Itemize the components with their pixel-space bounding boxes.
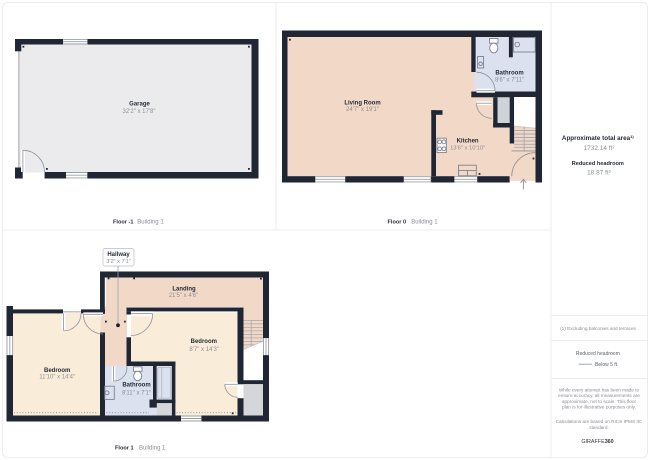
svg-text:3'2" x 7'1": 3'2" x 7'1" [106,259,130,265]
svg-text:Building 1: Building 1 [139,446,166,452]
svg-text:Approximate total area1): Approximate total area1) [562,134,634,142]
svg-text:1732.14 ft²: 1732.14 ft² [583,145,615,152]
svg-text:21'5" x 4'6": 21'5" x 4'6" [169,293,199,299]
svg-text:Bedroom: Bedroom [191,339,217,345]
svg-text:While every attempt has been m: While every attempt has been made to [559,388,640,393]
svg-text:plan is for illustrative purpo: plan is for illustrative purposes only. [562,405,636,410]
svg-text:Hallway: Hallway [107,252,130,258]
svg-text:24'7" x 19'1": 24'7" x 19'1" [346,107,379,113]
svg-text:standard.: standard. [589,425,609,430]
svg-text:8'7" x 14'3": 8'7" x 14'3" [189,347,219,353]
svg-text:Bathroom: Bathroom [122,383,150,389]
svg-text:GIRAFFE360: GIRAFFE360 [581,439,613,445]
svg-text:8'6" x 7'11": 8'6" x 7'11" [495,77,524,83]
svg-text:Bathroom: Bathroom [495,71,523,77]
svg-text:Bedroom: Bedroom [44,368,70,374]
svg-text:Below 5 ft: Below 5 ft [595,362,618,368]
svg-text:Calculations are based on RICS: Calculations are based on RICS IPMS 3C [556,419,643,424]
svg-text:8'11" x 7'1": 8'11" x 7'1" [122,390,151,396]
svg-text:Floor 1: Floor 1 [115,446,134,452]
svg-text:32'2" x 17'8": 32'2" x 17'8" [123,109,156,115]
svg-text:Garage: Garage [129,101,150,107]
svg-text:approximate, not to scale. Thi: approximate, not to scale. This floor [562,399,637,404]
svg-text:11'10" x 14'4": 11'10" x 14'4" [39,374,75,380]
svg-text:Floor 0: Floor 0 [388,219,407,225]
svg-text:Building 1: Building 1 [411,219,438,225]
svg-text:13'6" x 10'10": 13'6" x 10'10" [450,145,485,151]
svg-text:Floor -1: Floor -1 [113,220,134,226]
svg-text:Living Room: Living Room [344,100,380,106]
svg-text:Landing: Landing [172,287,196,293]
svg-text:Reduced headroom: Reduced headroom [572,161,624,167]
svg-text:Building 1: Building 1 [137,220,164,226]
svg-text:18.87 ft²: 18.87 ft² [587,169,612,176]
svg-text:ensure accuracy, all measureme: ensure accuracy, all measurements are [558,393,640,398]
svg-text:Reduced headroom: Reduced headroom [576,351,620,357]
svg-text:Kitchen: Kitchen [457,138,479,144]
svg-text:(1) Excluding balconies and te: (1) Excluding balconies and terraces [560,326,636,331]
